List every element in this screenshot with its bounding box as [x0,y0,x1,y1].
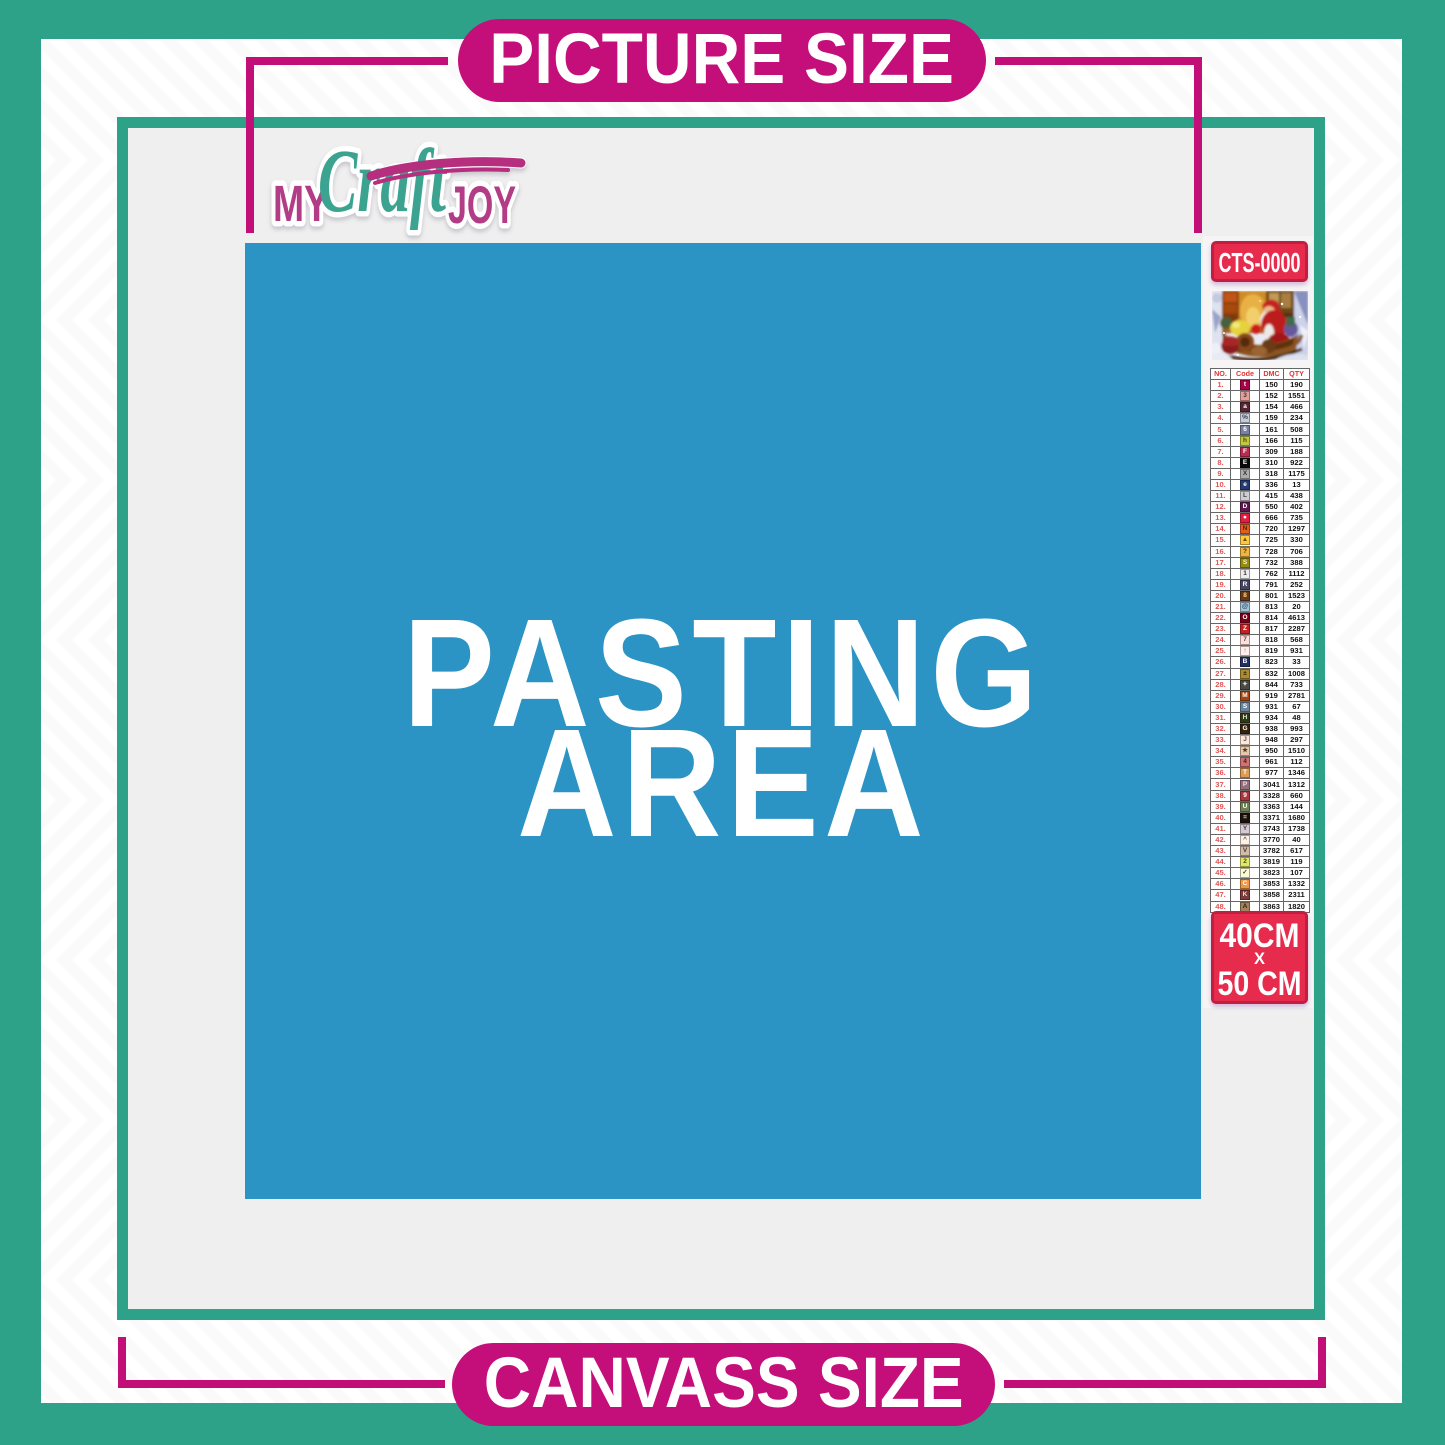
svg-text:JOY: JOY [448,176,516,235]
svg-text:CTS-0000: CTS-0000 [1219,247,1301,278]
svg-text:50 CM: 50 CM [1218,965,1302,1003]
